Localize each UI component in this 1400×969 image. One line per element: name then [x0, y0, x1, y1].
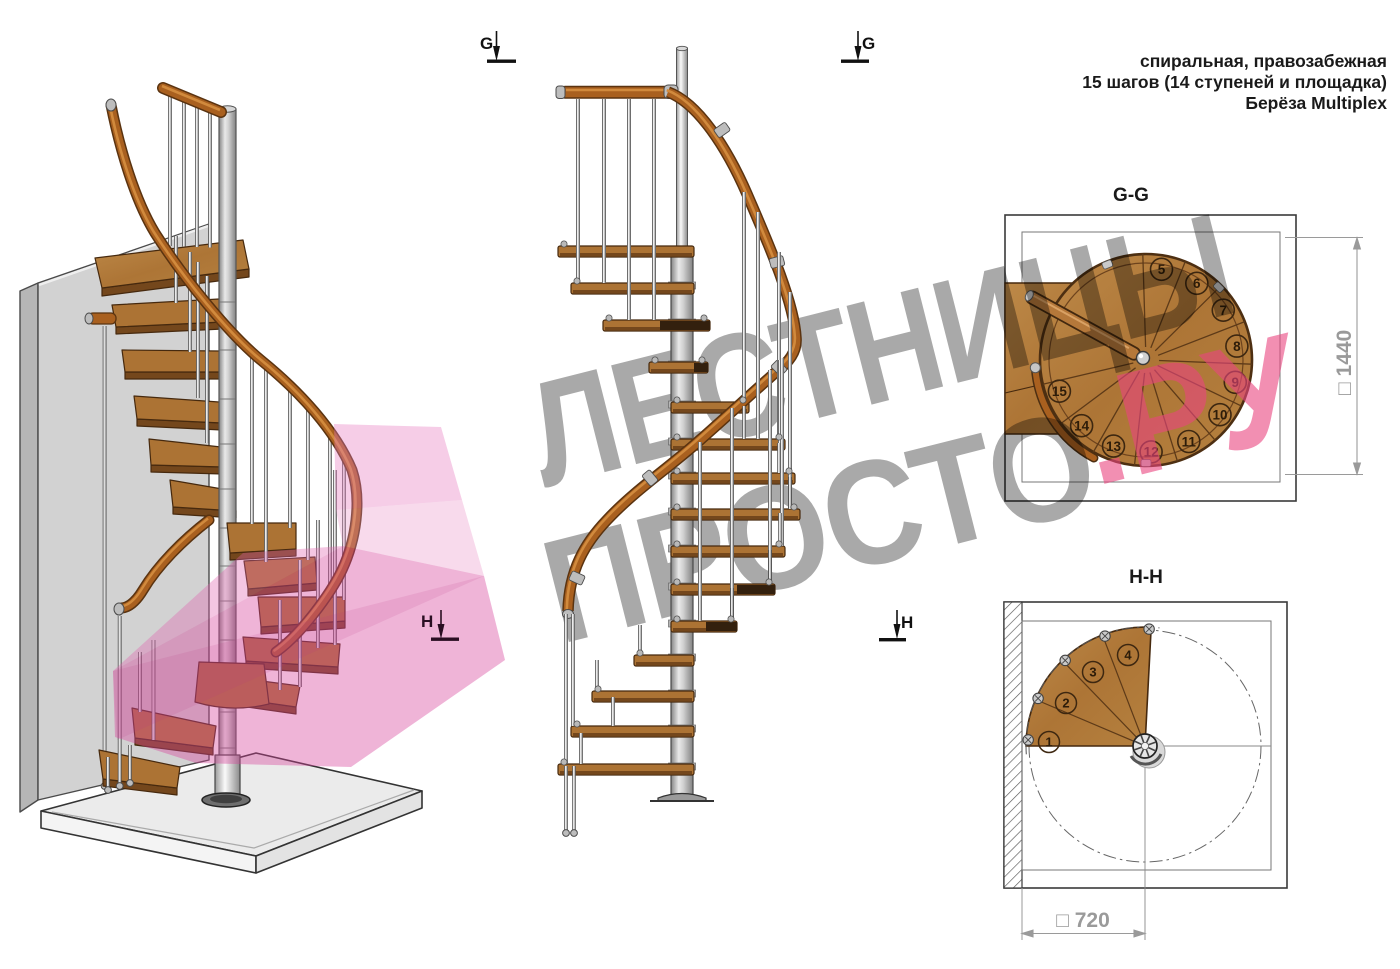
svg-text:G: G	[862, 34, 875, 53]
svg-text:Берёза Multiplex: Берёза Multiplex	[1245, 93, 1387, 113]
svg-text:G: G	[480, 34, 493, 53]
svg-text:□ 720: □ 720	[1056, 909, 1110, 932]
svg-text:2: 2	[1062, 696, 1069, 711]
svg-text:3: 3	[1089, 665, 1096, 680]
svg-text:H: H	[421, 612, 433, 631]
svg-text:15 шагов (14 ступеней и площад: 15 шагов (14 ступеней и площадка)	[1082, 72, 1387, 92]
svg-text:1: 1	[1045, 735, 1052, 750]
svg-text:H: H	[901, 613, 913, 632]
svg-text:спиральная, правозабежная: спиральная, правозабежная	[1140, 51, 1387, 71]
svg-text:H-H: H-H	[1129, 567, 1163, 588]
svg-text:□ 1440: □ 1440	[1333, 330, 1356, 395]
svg-text:4: 4	[1124, 648, 1132, 663]
